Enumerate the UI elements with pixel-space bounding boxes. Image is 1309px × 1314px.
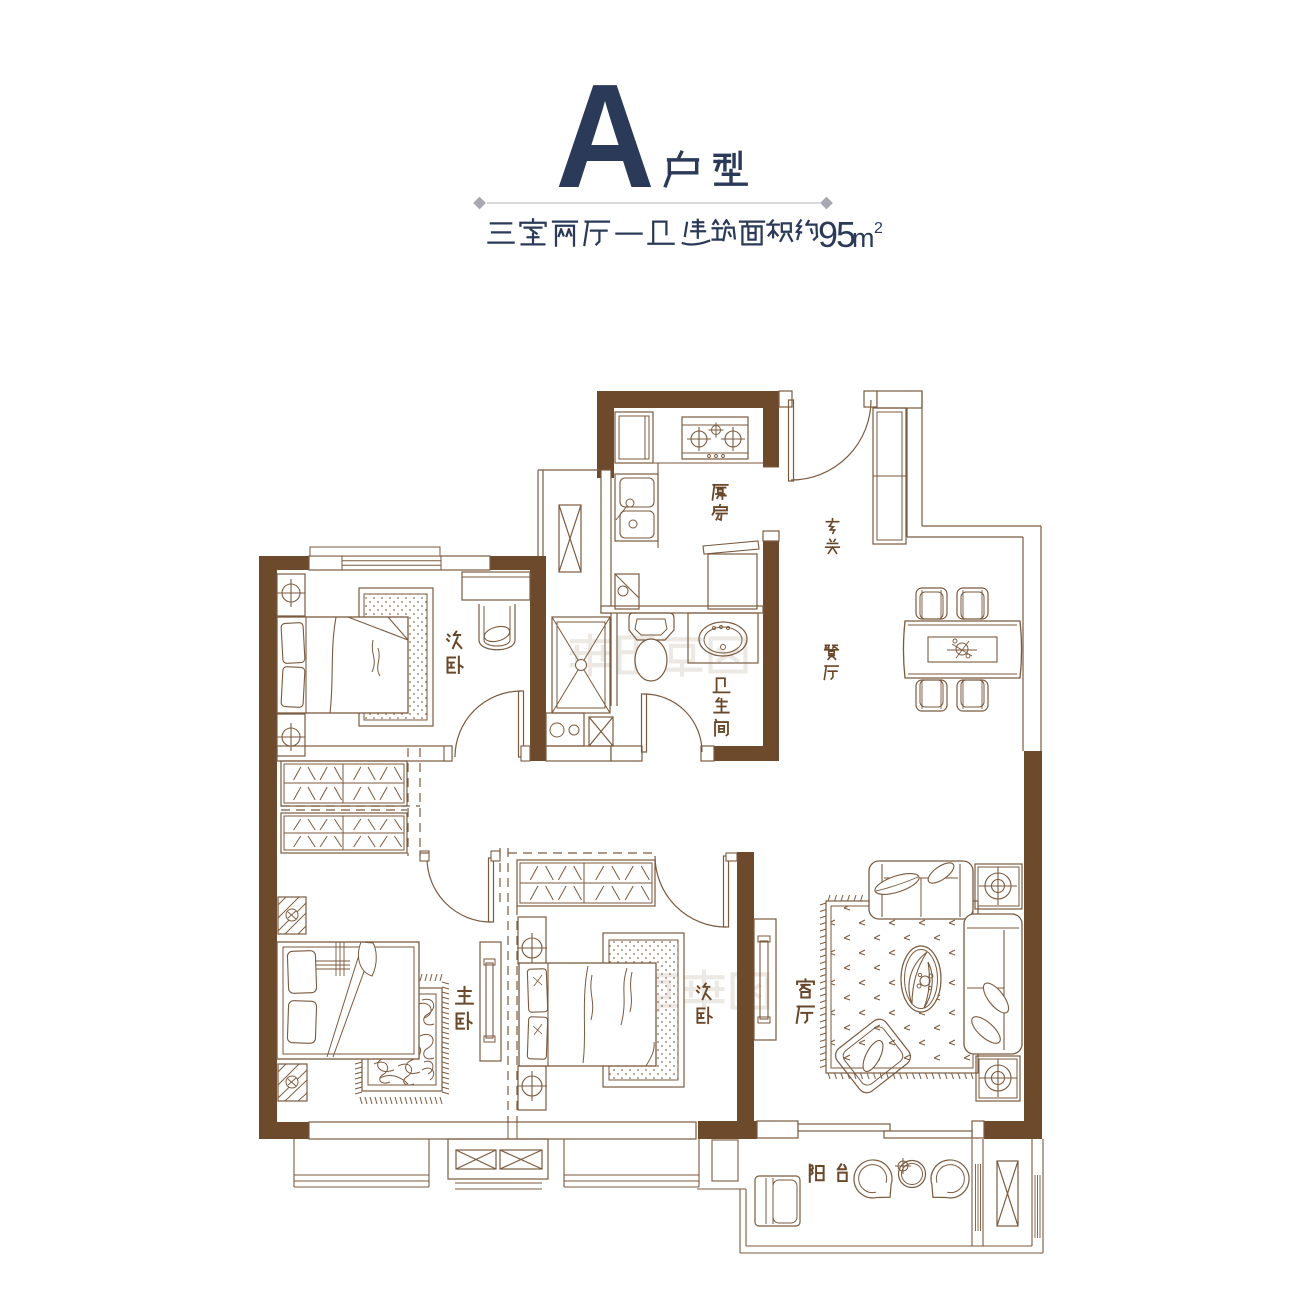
svg-text:A: A: [555, 54, 654, 219]
svg-text:95: 95: [818, 214, 855, 255]
svg-text:2: 2: [874, 220, 883, 237]
svg-text:m: m: [852, 223, 875, 253]
